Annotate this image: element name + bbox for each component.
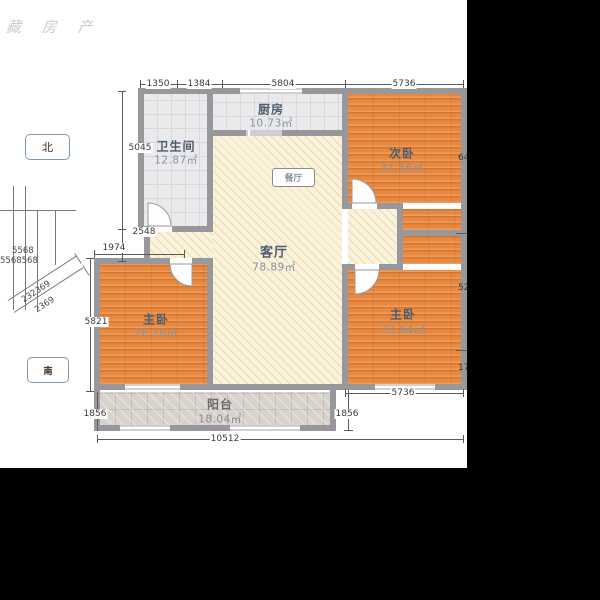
dimension-tick <box>456 350 467 351</box>
floorplan-image: 藏 房 产 北 南 <box>0 0 600 600</box>
balcony-area: 18.04㎡ <box>198 412 242 427</box>
letterbox-bottom <box>0 468 600 600</box>
dimension-tick <box>94 250 95 258</box>
dining-badge: 餐厅 <box>272 168 315 187</box>
dimension-tick <box>345 389 346 397</box>
dimension-tick <box>118 91 126 92</box>
stray-line <box>55 210 56 265</box>
dining-label: 餐厅 <box>284 171 302 184</box>
dim-top-5736: 5736 <box>392 79 417 89</box>
dim-bottom-5736: 5736 <box>391 388 416 398</box>
dimension-tick <box>222 80 223 88</box>
living-area: 78.89㎡ <box>252 260 296 275</box>
master-right-label: 主卧 <box>390 306 416 323</box>
dimension-tick <box>463 80 464 88</box>
dimension-tick <box>345 80 346 88</box>
dim-balcony-1856-left: 1856 <box>83 409 108 419</box>
master-right-area: 33.94㎡ <box>381 323 425 338</box>
living-label: 客厅 <box>260 242 288 261</box>
compass-north-badge: 北 <box>25 134 70 160</box>
master-right-door-arc <box>355 270 379 294</box>
dim-left-5045: 5045 <box>128 143 153 153</box>
master-left-area: 26.16㎡ <box>134 326 178 341</box>
dim-left-5821: 5821 <box>84 317 109 327</box>
dim-balcony-1856-right: 1856 <box>335 409 360 419</box>
dimension-tick <box>97 435 98 443</box>
dimension-line <box>122 91 123 261</box>
stray-dim-5568568: 5568568 <box>0 256 38 266</box>
dim-top-1350: 1350 <box>146 79 171 89</box>
compass-north-label: 北 <box>42 139 53 155</box>
dim-left-1974: 1974 <box>102 243 127 253</box>
dim-bottom-10512: 10512 <box>210 434 241 444</box>
dimension-tick <box>456 233 467 234</box>
compass-south-label: 南 <box>43 364 52 377</box>
bathroom-area: 12.87㎡ <box>154 153 198 168</box>
dimension-tick <box>184 250 185 258</box>
stray-dim-5568: 5568 <box>12 246 34 256</box>
dimension-tick <box>86 258 94 259</box>
dimension-tick <box>344 430 353 431</box>
bathroom-door-arc <box>148 203 171 226</box>
balcony-label: 阳台 <box>207 396 233 413</box>
dimension-tick <box>86 391 94 392</box>
bedroom2-area: 31.56㎡ <box>380 161 424 176</box>
compass-south-badge: 南 <box>27 357 69 383</box>
bedroom2-label: 次卧 <box>389 145 415 162</box>
bedroom2-door-arc <box>352 179 376 203</box>
dimension-line <box>97 439 464 440</box>
dimension-tick <box>140 80 141 88</box>
dimension-tick <box>118 229 126 230</box>
dimension-tick <box>463 389 464 397</box>
dim-top-1384: 1384 <box>187 79 212 89</box>
stray-line <box>0 210 76 211</box>
kitchen-area: 10.73㎡ <box>249 116 293 131</box>
dimension-tick <box>463 435 464 443</box>
master-left-door-arc <box>170 264 192 286</box>
dim-left-2548: 2548 <box>132 227 157 237</box>
dimension-tick <box>118 261 126 262</box>
dimension-tick <box>177 80 178 88</box>
dim-top-5804: 5804 <box>271 79 296 89</box>
dimension-line <box>94 254 185 255</box>
